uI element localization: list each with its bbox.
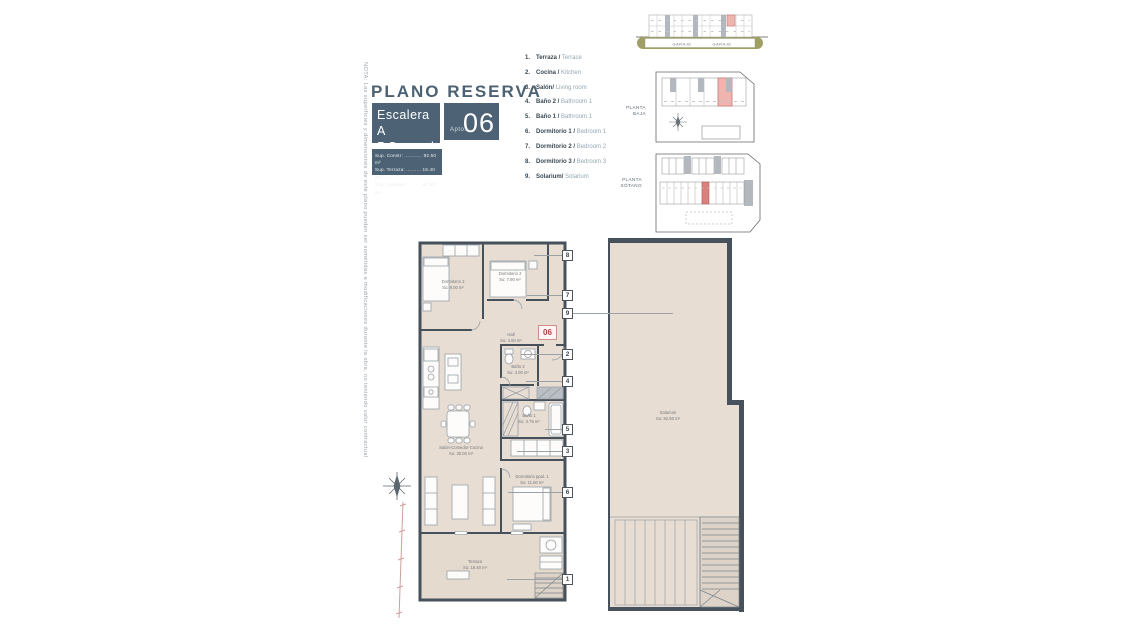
terrace-stairs	[535, 573, 563, 598]
callout-1: 1	[562, 574, 573, 585]
planta-baja-label: PLANTA BAJA	[612, 105, 646, 117]
leader-6	[508, 492, 562, 493]
hall-name: Hall	[507, 332, 514, 337]
surface-summary-box: Sup. Constr: ............ 92.50 m² Sup. …	[372, 149, 442, 175]
callout-9: 9	[562, 308, 573, 319]
apartment-number: 06	[463, 108, 495, 139]
ppal-name: Dormitorio ppal. 1	[515, 474, 549, 479]
d3-area: Su: 9.00 m²	[442, 285, 464, 290]
garaje-label-right: GARAJE	[712, 42, 731, 47]
b1-area: Su: 3.75 m²	[518, 419, 540, 424]
sofa-right	[483, 477, 495, 525]
callout-4: 4	[562, 376, 573, 387]
surface-line-terraza: Sup. Terraza: .......... 18.40 m²	[375, 166, 442, 181]
solarium-name: Solarium	[660, 410, 677, 415]
page-title: PLANO RESERVA	[371, 82, 542, 102]
legend-item-solarium: 9.Solarium/ Solarium	[525, 174, 589, 180]
d3-name: Dormitorio 3	[442, 279, 465, 284]
legend-item-dorm1: 6.Dormitorio 1 / Bedroom 1	[525, 129, 606, 135]
sotano-highlighted-stall	[702, 182, 709, 204]
solarium-area: Su: 82.50 m²	[656, 416, 681, 421]
sink-b1	[534, 402, 545, 410]
stair-floor-box: Escalera A P.Segunda	[372, 103, 440, 143]
callout-8: 8	[562, 250, 573, 261]
salon-name: Salón-Comedor-Cocina	[439, 445, 483, 450]
dimension-line	[396, 502, 406, 618]
terrace-planter	[540, 556, 562, 569]
callout-7: 7	[562, 290, 573, 301]
terraza-area: Su: 18.40 m²	[463, 565, 488, 570]
stair-label: Escalera A	[377, 107, 440, 139]
d2-name: Dormitorio 2	[499, 271, 522, 276]
leader-8	[534, 255, 562, 256]
legend-item-dorm3: 8.Dormitorio 3 / Bedroom 3	[525, 159, 606, 165]
service-shaft	[537, 387, 563, 399]
terrace-bench	[447, 571, 469, 579]
building-section-diagram: GARAJE GARAJE	[632, 8, 772, 54]
legend-item-bano1: 5.Baño 1 / Bathroom 1	[525, 114, 592, 120]
garaje-label-left: GARAJE	[672, 42, 691, 47]
nightstand-d3	[423, 303, 431, 311]
unit-number-badge: 06	[538, 325, 557, 340]
baja-pool	[702, 126, 740, 139]
wardrobe-d3	[443, 245, 479, 256]
planta-sotano-label: PLANTA SÓTANO	[608, 177, 642, 189]
leader-2	[521, 354, 562, 355]
bench-ppal	[513, 524, 531, 530]
leader-5	[545, 429, 562, 430]
legend-item-dorm2: 7.Dormitorio 2 / Bedroom 2	[525, 144, 606, 150]
legend-item-bano2: 4.Baño 2 / Bathroom 1	[525, 99, 592, 105]
compass-and-dimension	[382, 470, 412, 620]
leader-1	[507, 579, 562, 580]
reservation-plan-sheet: NOTA: Las superficies y dimensiones de e…	[0, 0, 1130, 635]
wardrobe-ppal	[511, 440, 563, 456]
planta-baja-diagram	[648, 66, 766, 148]
toilet-tank-b2	[505, 349, 513, 354]
b2-name: Baño 2	[511, 364, 525, 369]
surface-line-constr: Sup. Constr: ............ 92.50 m²	[375, 152, 442, 167]
callout-3: 3	[562, 446, 573, 457]
callout-2: 2	[562, 349, 573, 360]
b1-name: Baño 1	[522, 413, 536, 418]
legend-item-salon: 3.Salón/ Living room	[525, 85, 587, 91]
callout-6: 6	[562, 487, 573, 498]
salon-area: Su: 30.00 m²	[449, 451, 474, 456]
ppal-area: Su: 11.50 m²	[520, 480, 544, 485]
leader-3	[517, 451, 562, 452]
coffee-table	[452, 485, 468, 519]
solarium-floor-plan: Solarium Su: 82.50 m²	[598, 235, 758, 615]
garage-strip	[645, 39, 755, 48]
disclaimer-note: NOTA: Las superficies y dimensiones de e…	[356, 62, 368, 562]
toilet-b2	[505, 354, 513, 364]
north-compass-icon	[383, 472, 411, 500]
callout-5: 5	[562, 424, 573, 435]
legend-item-terraza: 1.Terraza / Terrace	[525, 55, 582, 61]
leader-4	[526, 381, 562, 382]
terraza-name: Terraza	[468, 559, 483, 564]
sofa-left	[425, 477, 437, 525]
b2-area: Su: 4.00 m²	[507, 370, 529, 375]
planta-sotano-diagram	[648, 148, 766, 238]
leader-9	[573, 313, 673, 314]
surface-line-solarium: Sup. Solarium: ........ 82.50 m²	[375, 181, 442, 196]
hall-area: Su: 4.50 m²	[500, 338, 522, 343]
dining-table	[447, 411, 469, 437]
apartment-box: Apto. 06	[444, 103, 499, 140]
leader-7	[527, 295, 562, 296]
d2-area: Su: 7.90 m²	[499, 277, 521, 282]
nightstand-d2	[529, 261, 537, 269]
solarium-stairs	[700, 517, 739, 607]
legend-item-cocina: 2.Cocina / Kitchen	[525, 70, 581, 76]
